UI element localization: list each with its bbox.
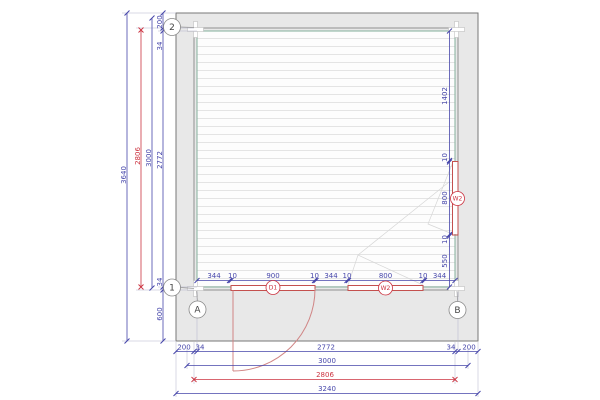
dim-text-ib-900: 900 — [266, 272, 279, 280]
grid-label-b: B — [454, 306, 460, 316]
door-d1-label: D1 — [269, 285, 278, 292]
grid-label-1: 1 — [169, 284, 175, 294]
dim-text-bottom-chain-200r: 200 — [462, 344, 475, 352]
dim-text-bottom-overall: 3240 — [318, 385, 336, 393]
dim-text-bottom-chain-34r: 34 — [447, 344, 456, 352]
bottom-dimensions: 200 34 2772 34 200 3000 2806 3240 — [174, 344, 481, 397]
dim-text-left-axis: 3000 — [145, 149, 153, 167]
dim-text-left-chain-200: 200 — [156, 15, 164, 28]
dim-text-ir-1402: 1402 — [441, 87, 449, 105]
interior-floor — [197, 31, 455, 287]
dim-text-ib-344b: 344 — [324, 272, 338, 280]
dim-text-bottom-axis: 3000 — [318, 357, 336, 365]
dim-text-left-chain-2772: 2772 — [156, 151, 164, 169]
grid-label-2: 2 — [169, 23, 175, 33]
dim-text-ir-550: 550 — [441, 254, 449, 267]
dim-text-bottom-wall: 2806 — [316, 371, 334, 379]
dim-text-ib-344a: 344 — [207, 272, 221, 280]
dim-text-bottom-chain-200l: 200 — [177, 344, 190, 352]
dim-text-ir-10a: 10 — [441, 153, 449, 162]
dim-text-left-wall: 2806 — [134, 147, 142, 165]
dim-text-left-chain-34a: 34 — [156, 41, 164, 50]
dim-text-ib-344c: 344 — [433, 272, 447, 280]
grid-label-a: A — [194, 306, 201, 316]
dim-text-ir-10b: 10 — [441, 235, 449, 244]
left-dimensions: 3640 2806 3000 200 34 2772 34 600 — [120, 11, 166, 344]
dim-text-bottom-chain-34l: 34 — [196, 344, 205, 352]
window-w2-bottom-label: W2 — [381, 285, 391, 292]
dim-text-bottom-chain-2772: 2772 — [317, 344, 335, 352]
window-w2-right-label: W2 — [453, 196, 463, 203]
dim-text-ib-10b: 10 — [310, 272, 319, 280]
floor-plan-svg: 3640 2806 3000 200 34 2772 34 600 200 34… — [0, 0, 600, 400]
drawing-page: 3640 2806 3000 200 34 2772 34 600 200 34… — [0, 0, 600, 400]
dim-text-left-chain-600: 600 — [156, 307, 164, 320]
dim-text-ib-10c: 10 — [343, 272, 352, 280]
grid-b-leader — [457, 291, 458, 302]
dim-text-ib-10a: 10 — [228, 272, 237, 280]
dim-text-ir-800: 800 — [441, 191, 449, 204]
dim-text-ib-800: 800 — [379, 272, 392, 280]
dim-text-ib-10d: 10 — [419, 272, 428, 280]
dim-text-left-chain-34b: 34 — [156, 277, 164, 286]
dim-text-left-overall: 3640 — [120, 166, 128, 184]
grid-2-leader — [181, 27, 195, 28]
